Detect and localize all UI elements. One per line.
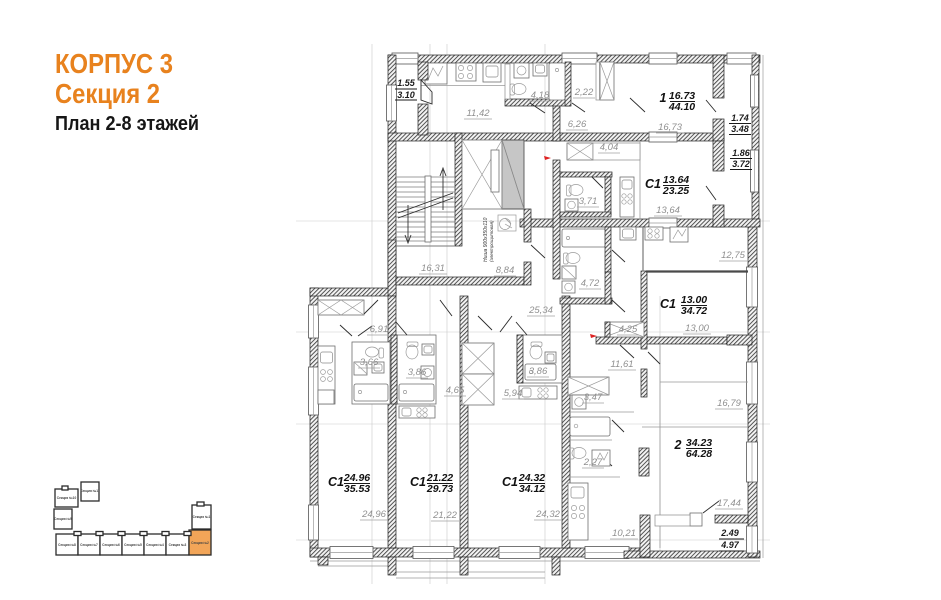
svg-text:34.12: 34.12	[519, 483, 545, 495]
svg-text:3,66: 3,66	[360, 357, 379, 368]
svg-text:Секция №5: Секция №5	[124, 543, 142, 547]
svg-text:4,72: 4,72	[581, 278, 600, 289]
svg-text:Секция №3: Секция №3	[169, 543, 187, 547]
svg-text:8,84: 8,84	[496, 265, 515, 276]
svg-text:2.49: 2.49	[720, 528, 739, 538]
svg-text:(электрощитовая): (электрощитовая)	[489, 220, 494, 262]
svg-text:С1: С1	[328, 475, 344, 489]
svg-text:1.74: 1.74	[731, 113, 749, 123]
svg-text:С1: С1	[410, 475, 426, 489]
svg-text:2: 2	[674, 438, 682, 452]
svg-text:24,96: 24,96	[361, 509, 386, 520]
svg-text:3,47: 3,47	[584, 392, 603, 403]
svg-text:План 2-8 этажей: План 2-8 этажей	[55, 112, 199, 135]
svg-text:Секция №6: Секция №6	[102, 543, 120, 547]
svg-text:16,31: 16,31	[421, 263, 445, 274]
svg-text:29.73: 29.73	[426, 483, 453, 495]
svg-text:Секция №4: Секция №4	[146, 543, 164, 547]
svg-text:КОРПУС 3: КОРПУС 3	[55, 48, 173, 79]
svg-text:1.55: 1.55	[397, 78, 416, 88]
svg-text:12,75: 12,75	[721, 250, 745, 261]
svg-text:С1: С1	[502, 475, 518, 489]
svg-text:Секция №1: Секция №1	[193, 515, 211, 519]
svg-text:3,86: 3,86	[408, 367, 427, 378]
svg-text:Секция №10: Секция №10	[57, 496, 77, 500]
svg-text:Секция №7: Секция №7	[80, 543, 98, 547]
svg-text:1: 1	[660, 91, 667, 105]
svg-text:16,79: 16,79	[717, 398, 741, 409]
svg-text:17,44: 17,44	[717, 498, 741, 509]
svg-text:25,34: 25,34	[528, 305, 553, 316]
svg-text:4,18: 4,18	[531, 90, 550, 101]
svg-text:2,27: 2,27	[583, 457, 603, 468]
svg-text:Секция №8: Секция №8	[58, 543, 76, 547]
svg-text:21,22: 21,22	[432, 510, 457, 521]
svg-text:Секция №9: Секция №9	[54, 517, 72, 521]
svg-text:3.10: 3.10	[397, 90, 415, 100]
svg-text:64.28: 64.28	[686, 448, 712, 460]
svg-text:4,65: 4,65	[446, 385, 465, 396]
svg-text:2,22: 2,22	[574, 87, 594, 98]
svg-text:5,94: 5,94	[504, 388, 523, 399]
svg-text:16,73: 16,73	[658, 122, 682, 133]
svg-text:10,21: 10,21	[612, 528, 636, 539]
svg-text:3.72: 3.72	[732, 159, 750, 169]
svg-text:6,26: 6,26	[568, 119, 587, 130]
svg-text:44.10: 44.10	[668, 101, 695, 113]
svg-text:11,42: 11,42	[466, 108, 490, 119]
svg-text:3,86: 3,86	[529, 366, 548, 377]
svg-text:3.48: 3.48	[731, 124, 749, 134]
svg-text:35.53: 35.53	[344, 483, 370, 495]
svg-text:11,61: 11,61	[610, 359, 633, 370]
svg-text:4,25: 4,25	[619, 324, 638, 335]
svg-text:34.72: 34.72	[681, 305, 707, 317]
svg-text:3,71: 3,71	[579, 196, 598, 207]
svg-text:С1: С1	[645, 177, 661, 191]
svg-text:Секция 2: Секция 2	[55, 78, 160, 109]
svg-text:13,00: 13,00	[685, 323, 709, 334]
svg-text:4,04: 4,04	[600, 142, 619, 153]
svg-text:Секция №2: Секция №2	[191, 541, 209, 545]
svg-text:4.97: 4.97	[720, 540, 740, 550]
svg-text:24,32: 24,32	[535, 509, 560, 520]
svg-text:6,91: 6,91	[370, 324, 389, 335]
svg-text:Секция №11: Секция №11	[80, 489, 99, 493]
svg-text:13,64: 13,64	[656, 205, 680, 216]
svg-text:23.25: 23.25	[662, 185, 689, 197]
svg-text:1.86: 1.86	[732, 148, 751, 158]
svg-text:С1: С1	[660, 297, 676, 311]
